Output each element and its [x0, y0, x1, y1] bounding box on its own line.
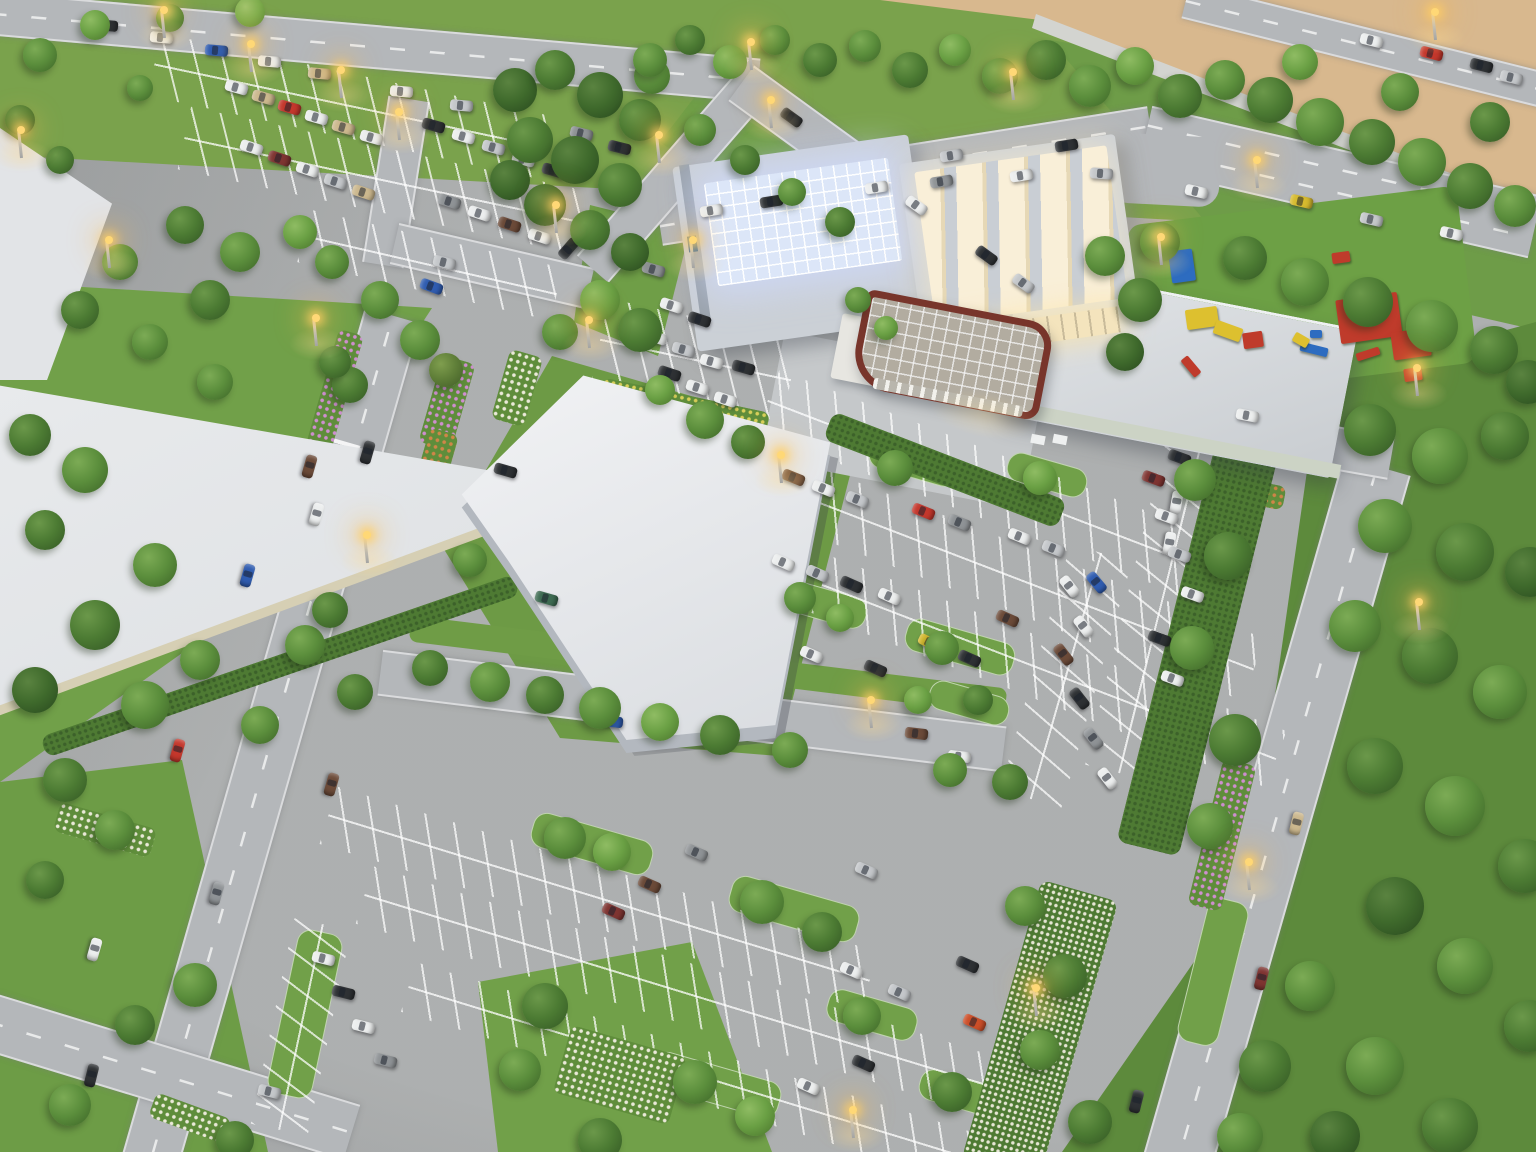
tree	[700, 715, 740, 755]
car-cabin	[648, 264, 657, 274]
tree	[1174, 459, 1216, 501]
car-cabin	[691, 847, 700, 858]
car-cabin	[1016, 171, 1024, 181]
tree	[1346, 1037, 1404, 1095]
car-cabin	[1148, 473, 1157, 483]
tree	[1068, 1100, 1112, 1144]
car-cabin	[1296, 196, 1304, 206]
tree	[220, 232, 260, 272]
lamp-light-pool	[632, 145, 690, 177]
tree	[904, 686, 932, 714]
car-cabin	[318, 953, 326, 963]
tree	[25, 510, 65, 550]
tree	[490, 160, 530, 200]
street-lamp-light	[747, 38, 755, 46]
car-cabin	[806, 649, 815, 660]
car-cabin	[964, 653, 973, 664]
lamp-light-pool	[744, 110, 802, 142]
street-lamp-light	[17, 126, 25, 134]
car-cabin	[894, 987, 903, 998]
tree	[992, 764, 1028, 800]
car-cabin	[884, 591, 893, 602]
loading-dock	[1052, 434, 1067, 446]
car-cabin	[1097, 169, 1104, 178]
lamp-light-pool	[340, 545, 398, 577]
playground-item	[1310, 330, 1322, 338]
street-lamp-light	[867, 696, 875, 704]
lamp-light-pool	[1230, 170, 1288, 202]
tree	[1285, 961, 1335, 1011]
tree	[845, 287, 871, 313]
lamp-light-pool	[1390, 378, 1448, 410]
tree	[1412, 428, 1468, 484]
tree	[577, 72, 623, 118]
tree	[62, 447, 108, 493]
car-cabin	[692, 382, 701, 392]
tree	[1106, 333, 1144, 371]
car-cabin	[444, 196, 453, 206]
car-cabin	[258, 92, 267, 102]
tree	[216, 1121, 254, 1152]
car-cabin	[614, 142, 622, 152]
tree	[1358, 499, 1412, 553]
tree	[499, 1049, 541, 1091]
car-cabin	[1257, 973, 1267, 981]
tree	[526, 676, 564, 714]
lamp-light-pool	[1222, 872, 1280, 904]
lamp-light-pool	[1392, 612, 1450, 644]
tree	[611, 233, 649, 271]
tree	[1023, 461, 1057, 495]
car-cabin	[954, 517, 963, 528]
playground-item	[1242, 331, 1264, 350]
car-cabin	[738, 362, 747, 372]
tree	[535, 50, 575, 90]
tree	[283, 215, 317, 249]
tree	[963, 685, 993, 715]
car-cabin	[846, 965, 855, 976]
car-cabin	[284, 102, 293, 112]
car-cabin	[858, 1058, 867, 1069]
car-cabin	[426, 281, 435, 291]
tree	[429, 353, 463, 387]
lamp-light-pool	[224, 54, 282, 86]
car-cabin	[861, 865, 870, 876]
car-cabin	[818, 483, 827, 494]
car-cabin	[1506, 72, 1514, 82]
car	[390, 85, 414, 98]
tree	[1281, 258, 1329, 306]
car-cabin	[380, 1055, 388, 1065]
car-cabin	[1292, 818, 1302, 826]
car-cabin	[969, 1017, 978, 1028]
lamp-light-pool	[314, 80, 372, 112]
street-lamp-light	[1413, 364, 1421, 372]
car-cabin	[173, 745, 183, 754]
car	[169, 738, 186, 763]
car-cabin	[1061, 141, 1069, 151]
car	[799, 645, 824, 664]
tree	[522, 983, 568, 1029]
tree	[197, 364, 233, 400]
car	[955, 955, 980, 974]
tree	[1069, 65, 1111, 107]
tree	[1447, 163, 1493, 209]
tree	[133, 543, 177, 587]
car-cabin	[1191, 186, 1199, 196]
car-cabin	[1154, 633, 1163, 643]
car-cabin	[1101, 772, 1112, 782]
tree	[633, 43, 667, 77]
tree	[673, 1060, 717, 1104]
lamp-light-pool	[844, 710, 902, 742]
car-cabin	[488, 142, 497, 152]
tree	[843, 997, 881, 1035]
tree	[1170, 626, 1214, 670]
car-cabin	[1446, 228, 1454, 238]
car-cabin	[358, 187, 367, 197]
car-cabin	[846, 579, 855, 590]
car	[373, 1052, 398, 1068]
car-cabin	[1174, 549, 1183, 559]
tree	[1347, 738, 1403, 794]
tree	[190, 280, 230, 320]
tree	[121, 681, 169, 729]
street-lamp-light	[585, 316, 593, 324]
car-cabin	[1172, 497, 1182, 505]
car-cabin	[706, 206, 714, 216]
car-cabin	[315, 69, 322, 78]
car	[205, 44, 229, 57]
tree	[778, 178, 806, 206]
tree	[166, 206, 204, 244]
car-cabin	[1165, 538, 1175, 546]
tree	[507, 117, 553, 163]
car-cabin	[694, 314, 703, 324]
tree	[115, 1005, 155, 1045]
street-lamp-light	[1431, 8, 1439, 16]
tree	[1005, 886, 1045, 926]
tree	[453, 543, 487, 577]
tree	[1343, 277, 1393, 327]
car-cabin	[1167, 673, 1176, 683]
tree	[731, 425, 765, 459]
tree	[1158, 74, 1202, 118]
tree	[1436, 523, 1494, 581]
tree	[933, 753, 967, 787]
tree	[892, 52, 928, 88]
tree	[1118, 278, 1162, 322]
street-lamp-light	[395, 108, 403, 116]
street-lamp-light	[1157, 233, 1165, 241]
tree	[1217, 1113, 1263, 1152]
street-lamp-light	[689, 236, 697, 244]
tree	[580, 280, 620, 320]
tree	[877, 450, 913, 486]
lamp-light-pool	[562, 330, 620, 362]
tree	[939, 34, 971, 66]
car	[450, 99, 474, 112]
tree	[43, 758, 87, 802]
tree	[1481, 412, 1529, 460]
car-cabin	[870, 663, 879, 674]
tree	[1422, 1098, 1478, 1152]
car-cabin	[1017, 277, 1027, 288]
tree	[593, 833, 631, 871]
tree	[925, 631, 959, 665]
car-cabin	[428, 120, 437, 130]
tree	[802, 912, 842, 952]
tree	[173, 963, 217, 1007]
tree	[598, 163, 642, 207]
street-lamp-light	[312, 314, 320, 322]
car-cabin	[1057, 648, 1068, 658]
car-cabin	[212, 888, 222, 897]
lamp-light-pool	[289, 328, 347, 360]
car-cabin	[311, 112, 320, 122]
tree	[1344, 404, 1396, 456]
tree	[1296, 98, 1344, 146]
tree	[1204, 532, 1252, 580]
street-lamp-light	[655, 131, 663, 139]
tree	[1026, 40, 1066, 80]
tree	[1187, 803, 1233, 849]
car-cabin	[678, 344, 687, 354]
tree	[49, 1084, 91, 1126]
car-cabin	[1073, 692, 1084, 702]
tree	[1116, 47, 1154, 85]
street-lamp-light	[552, 201, 560, 209]
car-cabin	[302, 164, 311, 174]
tree	[760, 25, 790, 55]
car-cabin	[212, 46, 219, 55]
street-lamp-light	[849, 1106, 857, 1114]
car-cabin	[1366, 214, 1374, 224]
car-cabin	[1002, 613, 1011, 624]
tree	[684, 114, 716, 146]
lamp-light-pool	[1134, 247, 1192, 279]
tree	[1494, 185, 1536, 227]
lamp-light-pool	[137, 20, 195, 52]
car-cabin	[1476, 60, 1484, 70]
car-cabin	[504, 219, 513, 229]
car-cabin	[305, 461, 315, 470]
car-cabin	[766, 197, 774, 207]
car-cabin	[1014, 531, 1023, 542]
car-cabin	[330, 176, 339, 186]
car-cabin	[1132, 1096, 1142, 1104]
tree	[1437, 938, 1493, 994]
tree	[412, 650, 448, 686]
car-cabin	[1090, 576, 1101, 587]
tree	[241, 706, 279, 744]
lamp-light-pool	[724, 52, 782, 84]
tree	[315, 245, 349, 279]
tree	[932, 1072, 972, 1112]
tree	[337, 674, 373, 710]
tree	[470, 662, 510, 702]
tree	[730, 145, 760, 175]
tree	[825, 207, 855, 237]
car-cabin	[910, 199, 920, 210]
street-lamp-light	[1415, 598, 1423, 606]
tree	[1381, 73, 1419, 111]
car-cabin	[1174, 452, 1183, 462]
tree	[1349, 119, 1395, 165]
tree	[132, 324, 168, 360]
car	[351, 1018, 376, 1034]
car-cabin	[264, 1086, 272, 1096]
car-cabin	[500, 465, 509, 475]
car-cabin	[1048, 543, 1057, 554]
model-photo	[0, 0, 1536, 1152]
tree	[675, 25, 705, 55]
street-lamp-light	[1032, 984, 1040, 992]
car-cabin	[911, 729, 918, 739]
lamp-light-pool	[82, 250, 140, 282]
tree	[400, 320, 440, 360]
car-cabin	[246, 142, 255, 152]
tree	[1398, 138, 1446, 186]
street-lamp-light	[767, 96, 775, 104]
tree	[645, 375, 675, 405]
tree	[61, 291, 99, 329]
street-lamp-light	[777, 451, 785, 459]
car-cabin	[812, 568, 821, 579]
car-cabin	[457, 101, 464, 110]
tree	[579, 687, 621, 729]
tree	[849, 30, 881, 62]
car-cabin	[90, 944, 100, 953]
tree	[641, 703, 679, 741]
car-cabin	[778, 557, 787, 568]
car-cabin	[1161, 511, 1170, 521]
tree	[784, 582, 816, 614]
car	[854, 861, 879, 880]
tree	[12, 667, 58, 713]
lamp-light-pool	[826, 1120, 884, 1152]
street-lamp-light	[337, 66, 345, 74]
tree	[1366, 877, 1424, 935]
lamp-light-pool	[754, 465, 812, 497]
tree	[80, 10, 110, 40]
lamp-light-pool	[986, 82, 1044, 114]
car-cabin	[608, 906, 617, 917]
car-cabin	[666, 300, 675, 310]
tree	[1209, 714, 1261, 766]
car-cabin	[852, 494, 861, 505]
car-cabin	[980, 249, 990, 260]
tree	[803, 43, 837, 77]
car-cabin	[87, 1070, 97, 1078]
street-lamp-light	[1009, 68, 1017, 76]
tree	[26, 861, 64, 899]
tree	[180, 640, 220, 680]
car-cabin	[327, 779, 337, 788]
tree	[312, 592, 348, 628]
car	[1090, 167, 1114, 180]
tree	[740, 880, 784, 924]
tree	[1239, 1040, 1291, 1092]
car-cabin	[363, 447, 373, 456]
car-cabin	[918, 506, 927, 517]
tree	[1223, 236, 1267, 280]
tree	[361, 281, 399, 319]
street-lamp-light	[160, 6, 168, 14]
car	[684, 843, 709, 862]
car-cabin	[1077, 620, 1088, 630]
car-cabin	[936, 177, 944, 187]
car-cabin	[1063, 580, 1074, 590]
tree	[544, 817, 586, 859]
tree	[618, 308, 662, 352]
tree	[772, 732, 808, 768]
tree	[1205, 60, 1245, 100]
car-cabin	[946, 151, 954, 161]
tree	[1470, 102, 1510, 142]
car-cabin	[274, 153, 283, 163]
tree	[127, 75, 153, 101]
car-cabin	[243, 570, 253, 579]
tree	[1085, 236, 1125, 276]
car	[887, 983, 912, 1002]
car-cabin	[871, 183, 879, 193]
car-cabin	[720, 394, 729, 404]
tree	[23, 38, 57, 72]
tree	[686, 401, 724, 439]
tree	[285, 625, 325, 665]
car-cabin	[458, 131, 467, 141]
street-lamp-light	[363, 531, 371, 539]
tree	[1020, 1030, 1060, 1070]
car-cabin	[962, 959, 971, 970]
car-cabin	[358, 1021, 366, 1031]
car	[308, 67, 332, 80]
tree	[1043, 954, 1087, 998]
tree	[1473, 665, 1527, 719]
tree	[551, 136, 599, 184]
tree	[9, 414, 51, 456]
car-cabin	[1366, 35, 1374, 45]
tree	[1425, 776, 1485, 836]
tree	[95, 810, 135, 850]
car-cabin	[474, 208, 483, 218]
street-lamp-light	[247, 40, 255, 48]
tree	[493, 68, 537, 112]
street-lamp-light	[1245, 858, 1253, 866]
car-cabin	[541, 593, 550, 603]
car-cabin	[338, 987, 346, 997]
tree	[735, 1096, 775, 1136]
street-lamp-light	[1253, 156, 1261, 164]
lamp-light-pool	[372, 122, 430, 154]
car-cabin	[644, 879, 653, 890]
tree	[1406, 300, 1458, 352]
tree	[826, 604, 854, 632]
street-lamp-light	[105, 236, 113, 244]
tree	[1247, 77, 1293, 123]
car-cabin	[1187, 589, 1196, 599]
tree	[1282, 44, 1318, 80]
car-cabin	[803, 1081, 812, 1092]
tree	[1329, 600, 1381, 652]
car-cabin	[1087, 732, 1098, 742]
car-cabin	[397, 87, 404, 96]
car-cabin	[1242, 410, 1250, 420]
car	[962, 1013, 987, 1032]
car-cabin	[312, 509, 322, 518]
car-cabin	[338, 122, 347, 132]
